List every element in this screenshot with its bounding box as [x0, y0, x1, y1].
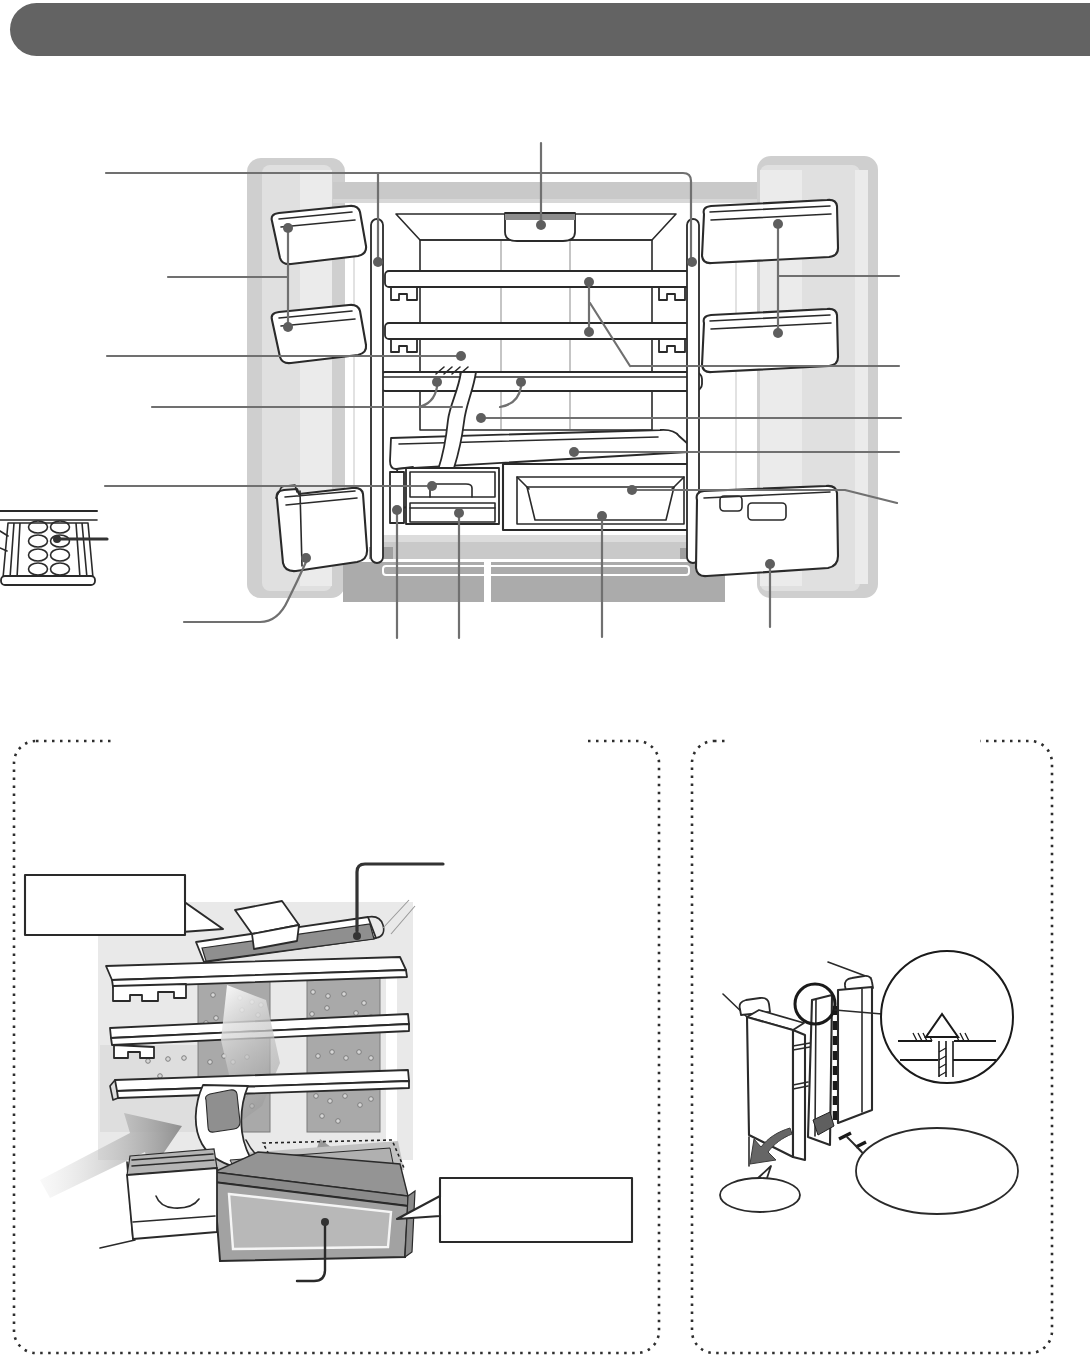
callout-dot-partition-panel — [392, 505, 402, 515]
panel-hole — [358, 1103, 363, 1108]
callout-dot-right-door-bin-upper — [773, 219, 783, 229]
panel-hole — [369, 1097, 374, 1102]
callout-dot-left-lower-bin — [301, 553, 311, 563]
perforated-panel-right — [307, 973, 380, 1132]
panel-hole — [342, 992, 347, 997]
panel-hole — [343, 1094, 348, 1099]
shelf-1 — [385, 271, 691, 300]
slide-dashes — [839, 1133, 866, 1147]
callout-dot-egg-pocket — [53, 535, 61, 543]
scene-drawer — [127, 1149, 217, 1239]
panel-hole — [354, 1011, 359, 1016]
egg-pockets — [29, 521, 70, 575]
panel-hole — [316, 1054, 321, 1059]
callout-dot-right-lower-bin — [765, 559, 775, 569]
diagram-canvas — [0, 0, 1090, 1367]
detail-circle — [881, 951, 1013, 1083]
left-lower-door-bin — [276, 485, 367, 571]
panel-hole — [328, 1099, 333, 1104]
callout-dot-ice-drawer — [427, 481, 437, 491]
callout-dot-case-frame — [627, 485, 637, 495]
right-door-3d — [838, 987, 872, 1123]
airflow-panel-title-gap — [112, 733, 586, 749]
label-box-case — [397, 1178, 632, 1242]
panel-hole — [325, 1006, 330, 1011]
panel-hole — [311, 990, 316, 995]
left-pillar-strip — [371, 219, 383, 563]
panel-hole — [330, 1050, 335, 1055]
left-door-bin-upper — [272, 206, 366, 264]
panel-hole — [369, 1056, 374, 1061]
panel-hole — [182, 1056, 187, 1061]
door-panel-title-gap — [726, 733, 980, 749]
callout-dot-left-door-bin-upper — [283, 223, 293, 233]
callout-dot-sliding-shelf-left — [432, 377, 442, 387]
drawer-unit — [406, 468, 499, 524]
panel-hole — [326, 994, 331, 999]
panel-hole — [314, 1094, 319, 1099]
callout-dot-airflow-top-duct — [353, 932, 361, 940]
speech-bubble-small — [720, 1166, 800, 1212]
panel-hole — [310, 1012, 315, 1017]
panel-hole — [214, 1016, 219, 1021]
airflow-panel — [14, 733, 659, 1353]
callout-dot-back-wall — [456, 351, 466, 361]
panel-hole — [320, 1114, 325, 1119]
callout-dot-case-window — [597, 511, 607, 521]
speech-bubble-large — [847, 1128, 1018, 1214]
callout-dot-right-pillar-cover — [687, 257, 697, 267]
callout-dot-left-pillar-cover — [373, 257, 383, 267]
chilled-case-3d — [214, 1140, 415, 1281]
panel-hole — [211, 993, 216, 998]
panel-hole — [362, 1001, 367, 1006]
right-door-bin-upper — [702, 200, 838, 263]
callout-dot-right-door-bin-lower — [773, 328, 783, 338]
panel-hole — [344, 1056, 349, 1061]
right-door-bin-lower — [702, 309, 838, 372]
panel-hole — [166, 1057, 171, 1062]
manual-page — [0, 0, 1090, 1367]
callout-dot-left-door-bin-lower — [283, 322, 293, 332]
egg-tray-figure — [0, 511, 107, 585]
panel-hole — [146, 1059, 151, 1064]
panel-hole — [336, 1119, 341, 1124]
callout-dot-sliding-shelf-right — [516, 377, 526, 387]
cabinet-top-band-edge — [333, 199, 757, 203]
callout-dot-airflow-chilled-case — [321, 1218, 329, 1226]
panel-hole — [208, 1060, 213, 1065]
callout-dot-shelf-upper — [584, 277, 594, 287]
callout-dot-chilled-room-top — [569, 447, 579, 457]
callout-dot-shelf-lower — [584, 327, 594, 337]
callout-dot-small-drawer — [454, 508, 464, 518]
shelf-2 — [385, 323, 691, 352]
callout-dot-led-lamp — [536, 220, 546, 230]
callout-dot-water-tube — [476, 413, 486, 423]
door-pillar-panel — [692, 733, 1052, 1353]
base-kick — [343, 535, 725, 602]
left-door-bin-lower — [272, 305, 366, 363]
sliding-shelf — [378, 367, 702, 391]
panel-hole — [357, 1050, 362, 1055]
